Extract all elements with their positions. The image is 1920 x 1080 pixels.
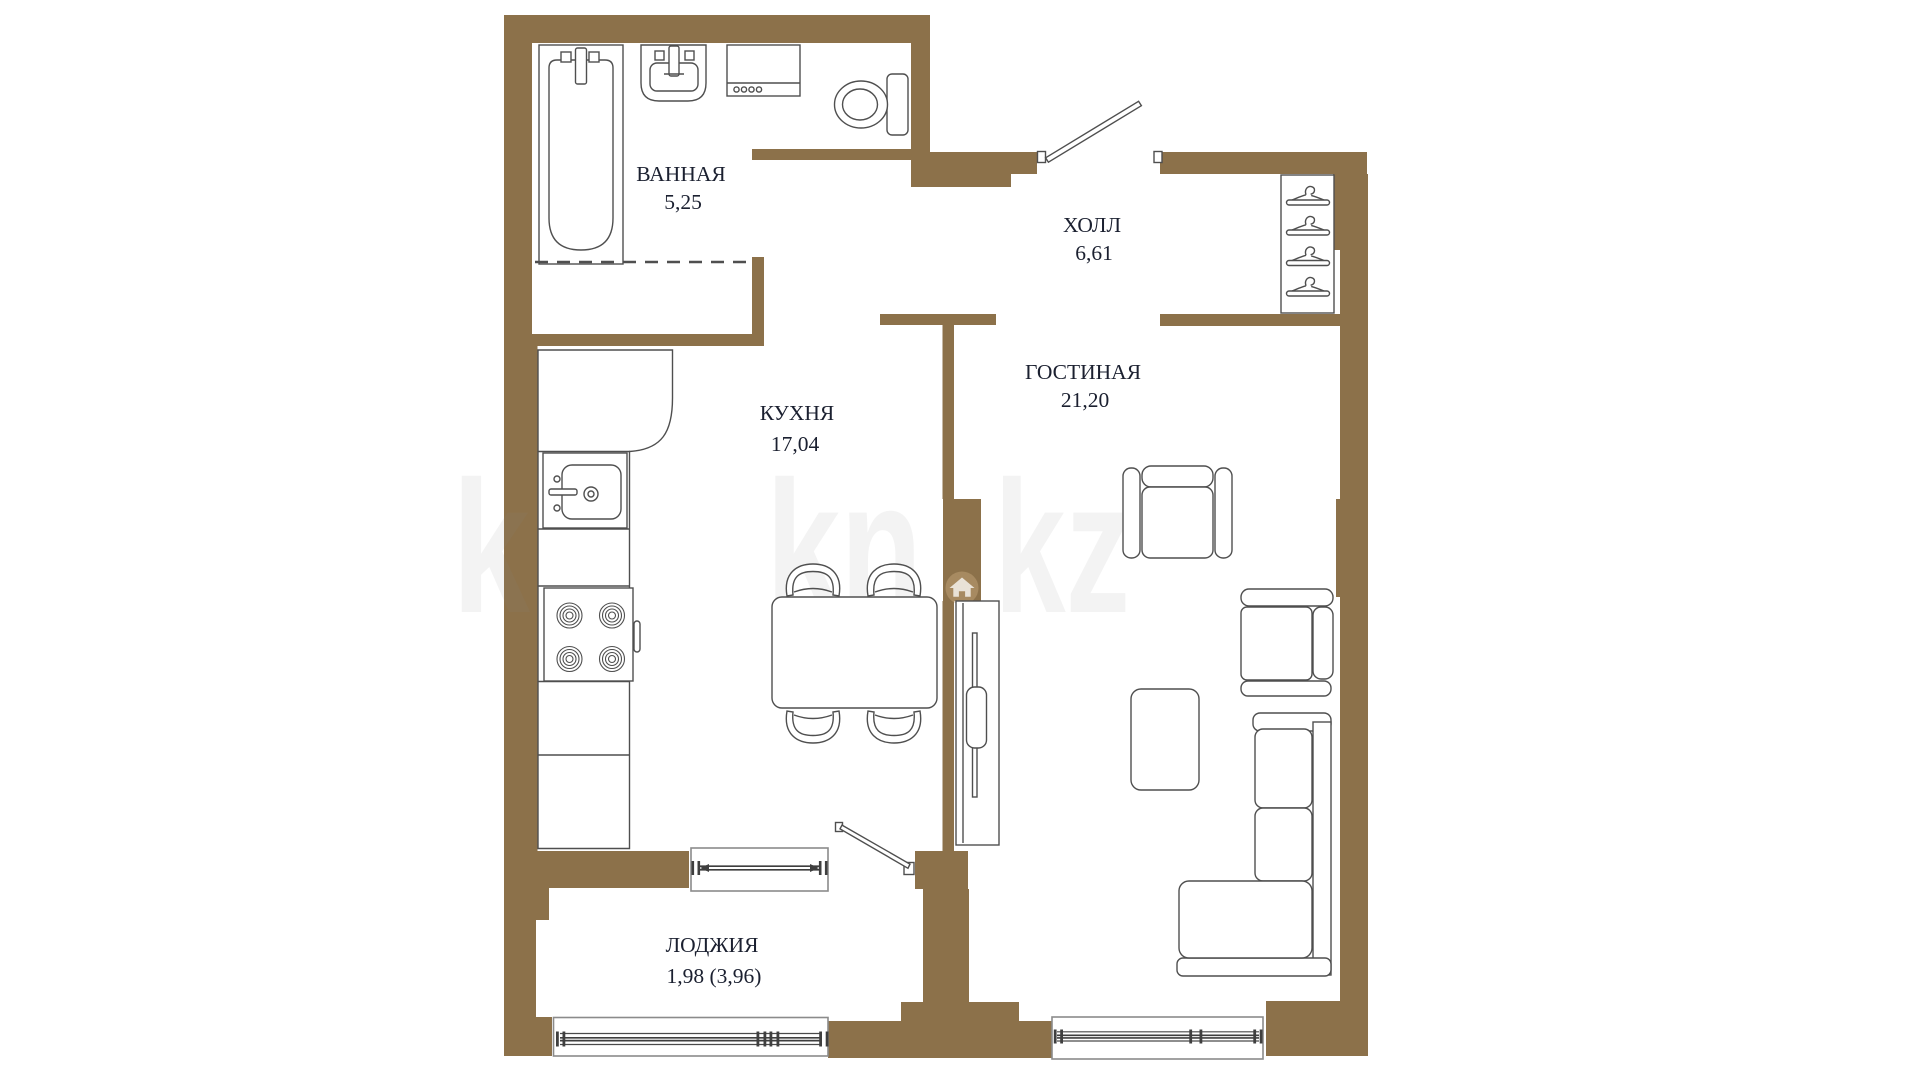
svg-text:kz: kz [994,442,1130,652]
svg-text:ХОЛЛ: ХОЛЛ [1063,213,1121,237]
svg-text:ВАННАЯ: ВАННАЯ [636,162,725,186]
svg-text:21,20: 21,20 [1061,388,1109,412]
svg-text:1,98 (3,96): 1,98 (3,96) [667,964,762,988]
svg-text:ЛОДЖИЯ: ЛОДЖИЯ [666,933,759,957]
svg-text:k: k [452,442,530,652]
svg-text:5,25: 5,25 [664,190,702,214]
svg-text:КУХНЯ: КУХНЯ [760,401,835,425]
svg-text:6,61: 6,61 [1075,241,1113,265]
svg-text:ГОСТИНАЯ: ГОСТИНАЯ [1025,360,1141,384]
svg-text:17,04: 17,04 [771,432,820,456]
